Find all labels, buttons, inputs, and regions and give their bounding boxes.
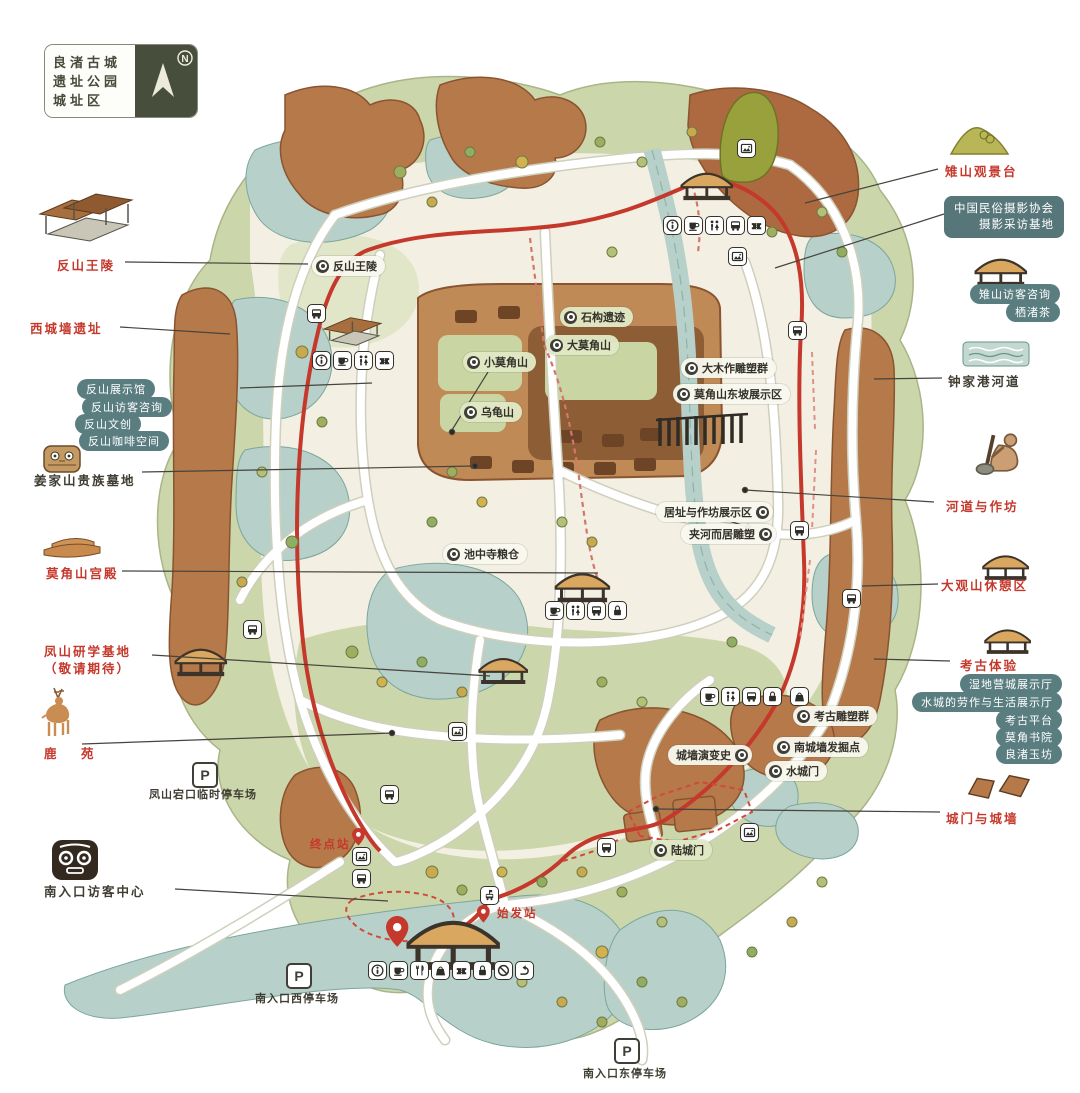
map-label-text: 池中寺粮仓	[464, 546, 519, 562]
poi-dot-icon	[756, 506, 769, 519]
map-label-xiao-mojiaoshan[interactable]: 小莫角山	[463, 352, 536, 372]
departure-station-label[interactable]: 始发站	[497, 905, 538, 921]
map-label-text: 小莫角山	[484, 354, 528, 370]
map-label-text: 反山王陵	[333, 258, 377, 274]
terminal-station-label[interactable]: 终点站	[310, 836, 351, 852]
map-label-archaeology-sculptures[interactable]: 考古雕塑群	[793, 706, 877, 726]
viewpoint-photo-icon[interactable]	[728, 247, 747, 266]
map-label-text: 大木作雕塑群	[702, 360, 768, 376]
pill-wetland-city-hall[interactable]: 湿地营城展示厅	[960, 674, 1062, 694]
viewpoint-photo-icon[interactable]	[740, 823, 759, 842]
poi-dot-icon	[550, 339, 563, 352]
photo-association-line2: 摄影采访基地	[954, 217, 1054, 233]
bus-stop-icon[interactable]	[243, 620, 262, 639]
service-icons-southeast	[700, 687, 809, 706]
ticket-icon[interactable]	[747, 216, 766, 235]
bus-icon[interactable]	[726, 216, 745, 235]
title-line: 城址区	[53, 91, 127, 110]
bus-icon[interactable]	[742, 687, 761, 706]
archaeology-hut-illustration	[985, 630, 1030, 652]
callout-fengshan-study-base-note: （敬请期待）	[44, 658, 131, 677]
title-line: 遗址公园	[53, 72, 127, 91]
map-label-text: 陆城门	[671, 842, 704, 858]
parking-icon[interactable]: P	[192, 762, 218, 788]
exit-icon[interactable]	[515, 961, 534, 980]
map-label-text: 考古雕塑群	[814, 708, 869, 724]
info-icon[interactable]	[312, 351, 331, 370]
poi-dot-icon	[654, 844, 667, 857]
map-label-water-gate[interactable]: 水城门	[765, 761, 827, 781]
no-smoking-icon[interactable]	[494, 961, 513, 980]
callout-deer-garden[interactable]: 鹿 苑	[44, 743, 100, 762]
restroom-icon[interactable]	[354, 351, 373, 370]
north-arrow-icon: N	[135, 45, 197, 117]
parking-label-fengshan: 凤山宕口临时停车场	[118, 786, 288, 802]
departure-flag-icon[interactable]	[480, 886, 499, 905]
map-label-text: 居址与作坊展示区	[664, 504, 752, 520]
map-label-land-gate[interactable]: 陆城门	[650, 840, 712, 860]
map-label-wall-evolution[interactable]: 城墙演变史	[668, 745, 752, 765]
poi-dot-icon	[316, 260, 329, 273]
restroom-icon[interactable]	[721, 687, 740, 706]
callout-gates-and-walls[interactable]: 城门与城墙	[946, 808, 1019, 827]
god-face-emblem	[52, 840, 98, 880]
fanshan-tomb-illustration	[40, 194, 132, 241]
poi-dot-icon	[447, 548, 460, 561]
poi-dot-icon	[759, 528, 772, 541]
poi-dot-icon	[769, 765, 782, 778]
callout-south-visitor-center[interactable]: 南入口访客中心	[44, 881, 146, 900]
viewpoint-photo-icon[interactable]	[448, 722, 467, 741]
pill-qizhu-tea[interactable]: 栖渚茶	[1006, 302, 1060, 322]
callout-daguanshan-rest-area[interactable]: 大观山休憩区	[941, 575, 1028, 594]
bus-stop-icon[interactable]	[597, 838, 616, 857]
map-label-text: 南城墙发掘点	[794, 739, 860, 755]
map-label-text: 大莫角山	[567, 337, 611, 353]
service-icons-daguanshan	[545, 601, 627, 620]
jade-cong-illustration	[44, 446, 80, 472]
shop-icon[interactable]	[431, 961, 450, 980]
map-label-south-wall-excavation[interactable]: 南城墙发掘点	[773, 737, 868, 757]
map-label-east-slope-area[interactable]: 莫角山东坡展示区	[673, 384, 790, 404]
callout-mojiaoshan-palace[interactable]: 莫角山宫殿	[46, 563, 119, 582]
deer-illustration	[42, 688, 69, 736]
cafe-icon[interactable]	[333, 351, 352, 370]
cafe-icon[interactable]	[389, 961, 408, 980]
map-title-box: 良渚古城 遗址公园 城址区 N	[45, 45, 197, 117]
poi-dot-icon	[467, 356, 480, 369]
pill-liangzhu-jade-workshop[interactable]: 良渚玉坊	[996, 744, 1062, 764]
viewpoint-photo-icon[interactable]	[737, 139, 756, 158]
bus-stop-icon[interactable]	[790, 521, 809, 540]
callout-zhongjiagang-river[interactable]: 钟家港河道	[948, 371, 1021, 390]
parking-icon[interactable]: P	[286, 963, 312, 989]
callout-zhishan-viewpoint[interactable]: 雉山观景台	[945, 161, 1018, 180]
service-icons-fanshan	[312, 351, 394, 370]
map-label-text: 夹河而居雕塑	[689, 526, 755, 542]
map-label-text: 莫角山东坡展示区	[694, 386, 782, 402]
north-indicator: N	[135, 45, 197, 117]
map-label-text: 城墙演变史	[676, 747, 731, 763]
parking-label-south-east: 南入口东停车场	[540, 1065, 710, 1081]
river-illustration	[963, 342, 1029, 366]
map-label-wuguishan[interactable]: 乌龟山	[460, 402, 522, 422]
locker-icon[interactable]	[608, 601, 627, 620]
palace-mound-illustration	[44, 538, 100, 557]
poi-dot-icon	[685, 362, 698, 375]
bus-stop-icon[interactable]	[307, 304, 326, 323]
map-label-fanshan-tomb[interactable]: 反山王陵	[312, 256, 385, 276]
pill-fanshan-exhibit-hall[interactable]: 反山展示馆	[77, 379, 155, 399]
callout-fanshan-tomb[interactable]: 反山王陵	[57, 255, 115, 274]
locker-icon[interactable]	[763, 687, 782, 706]
pill-zhishan-visitor-info[interactable]: 雉山访客咨询	[970, 284, 1060, 304]
callout-archaeology-experience[interactable]: 考古体验	[960, 655, 1018, 674]
viewpoint-photo-icon[interactable]	[352, 847, 371, 866]
poi-dot-icon	[735, 749, 748, 762]
map-label-da-mojiaoshan[interactable]: 大莫角山	[546, 335, 619, 355]
cafe-icon[interactable]	[684, 216, 703, 235]
map-canvas	[0, 0, 1080, 1093]
service-icons-north-gate	[663, 216, 766, 235]
shop-icon[interactable]	[790, 687, 809, 706]
restaurant-icon[interactable]	[410, 961, 429, 980]
locker-icon[interactable]	[473, 961, 492, 980]
map-label-timberwork-sculptures[interactable]: 大木作雕塑群	[681, 358, 776, 378]
zhishan-station-illustration	[976, 260, 1026, 284]
bus-icon[interactable]	[587, 601, 606, 620]
map-label-dwelling-workshop-area[interactable]: 居址与作坊展示区	[656, 502, 773, 522]
svg-text:N: N	[181, 54, 188, 65]
poi-dot-icon	[777, 741, 790, 754]
bus-stop-icon[interactable]	[788, 321, 807, 340]
workshop-figure-illustration	[977, 434, 1018, 474]
bus-stop-icon[interactable]	[380, 785, 399, 804]
parking-icon[interactable]: P	[614, 1038, 640, 1064]
photo-association-line1: 中国民俗摄影协会	[954, 201, 1054, 217]
map-label-text: 水城门	[786, 763, 819, 779]
bus-stop-icon[interactable]	[842, 589, 861, 608]
poi-dot-icon	[564, 311, 577, 324]
cafe-icon[interactable]	[545, 601, 564, 620]
map-label-riverside-sculpture[interactable]: 夹河而居雕塑	[681, 524, 776, 544]
pill-water-city-life-hall[interactable]: 水城的劳作与生活展示厅	[912, 692, 1062, 712]
callout-jiangjiashan-cemetery[interactable]: 姜家山贵族墓地	[34, 470, 136, 489]
map-label-stone-remains[interactable]: 石构遗迹	[560, 307, 633, 327]
photo-association-box[interactable]: 中国民俗摄影协会 摄影采访基地	[944, 196, 1064, 238]
bus-stop-icon[interactable]	[352, 869, 371, 888]
ticket-icon[interactable]	[452, 961, 471, 980]
ticket-icon[interactable]	[375, 351, 394, 370]
map-label-chizhongsi-granary[interactable]: 池中寺粮仓	[443, 544, 527, 564]
cafe-icon[interactable]	[700, 687, 719, 706]
title-line: 良渚古城	[53, 53, 127, 72]
info-icon[interactable]	[663, 216, 682, 235]
service-icons-south-entrance	[368, 961, 534, 980]
map-label-text: 乌龟山	[481, 404, 514, 420]
zhishan-viewpoint-illustration	[951, 128, 1008, 154]
map-title: 良渚古城 遗址公园 城址区	[45, 45, 135, 117]
callout-west-wall-site[interactable]: 西城墙遗址	[30, 318, 103, 337]
pill-fanshan-coffee[interactable]: 反山咖啡空间	[79, 431, 169, 451]
restroom-icon[interactable]	[566, 601, 585, 620]
parking-label-south-west: 南入口西停车场	[212, 990, 382, 1006]
liangzhu-park-map: 良渚古城 遗址公园 城址区 N 反山王陵 西城墙遗址 反山展示馆 反山访客咨询 …	[0, 0, 1080, 1093]
map-label-text: 石构遗迹	[581, 309, 625, 325]
poi-dot-icon	[464, 406, 477, 419]
wall-blocks-illustration	[969, 776, 1029, 798]
restroom-icon[interactable]	[705, 216, 724, 235]
poi-dot-icon	[677, 388, 690, 401]
poi-dot-icon	[797, 710, 810, 723]
callout-river-and-workshop[interactable]: 河道与作坊	[946, 496, 1019, 515]
info-icon[interactable]	[368, 961, 387, 980]
